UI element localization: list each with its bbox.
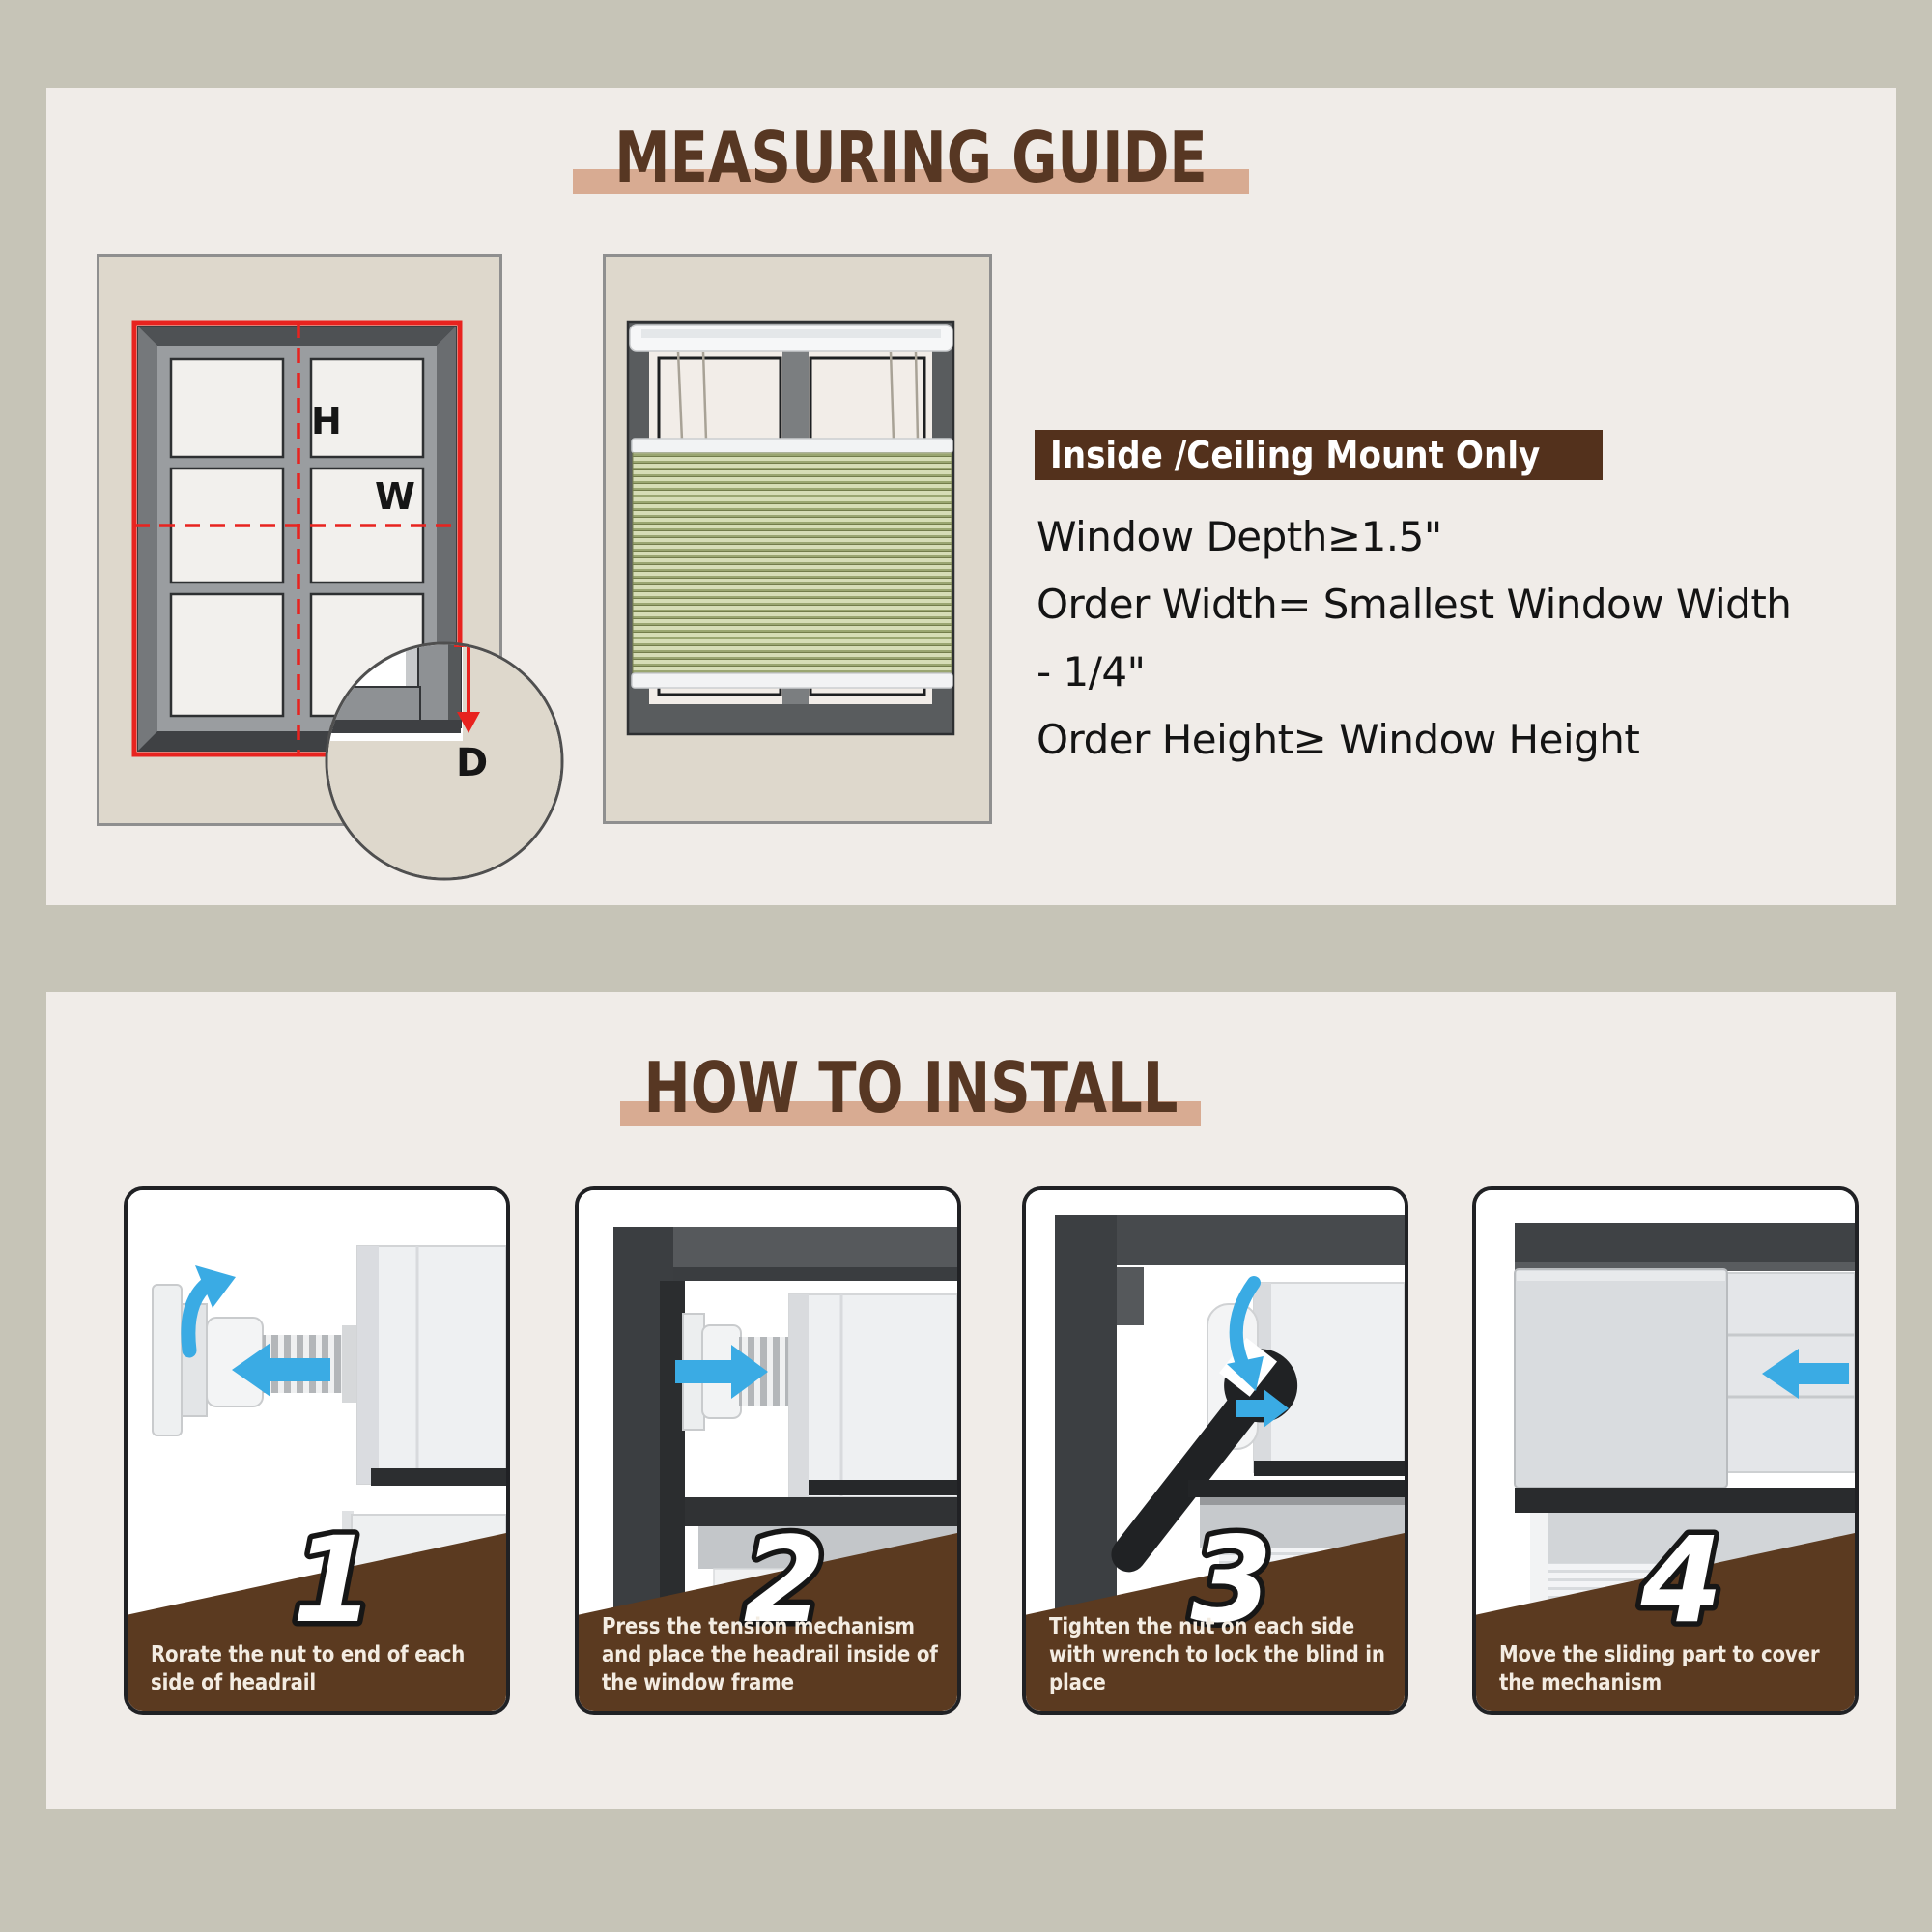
mount-type-badge: Inside /Ceiling Mount Only [1035,430,1603,480]
step-3-caption: Tighten the nut on each side with wrench… [1049,1613,1408,1697]
measuring-guide-section: MEASURING GUIDE [46,88,1896,905]
spec-line-depth: Window Depth≥1.5" [1037,503,1887,571]
headrail-end [357,1246,506,1486]
install-step-3-card: 3 Tighten the nut on each side with wren… [1022,1186,1408,1715]
bottom-rail [632,673,952,688]
middle-rail [632,439,952,453]
spec-line-width: Order Width= Smallest Window Width [1037,571,1887,639]
install-step-4-card: 4 Move the sliding part to cover the mec… [1472,1186,1859,1715]
spec-line-width-2: - 1/4" [1037,639,1887,706]
height-label: H [311,400,342,442]
install-step-2-card: 2 Press the tension mechanism and place … [575,1186,961,1715]
spec-line-height: Order Height≥ Window Height [1037,706,1887,774]
pleated-fabric [633,453,952,673]
measuring-specs: Window Depth≥1.5" Order Width= Smallest … [1037,503,1887,774]
depth-label: D [456,741,488,785]
svg-text:1: 1 [293,1512,375,1649]
install-step-1-card: 1 Rorate the nut to end of each side of … [124,1186,510,1715]
window-shade-diagram [603,254,992,824]
width-label: W [375,475,415,518]
how-to-install-title: HOW TO INSTALL [577,1053,1244,1122]
step-2-caption: Press the tension mechanism and place th… [602,1613,961,1697]
svg-text:4: 4 [1640,1512,1723,1649]
sliding-cover [1515,1269,1727,1488]
window-recess [1515,1223,1855,1271]
how-to-install-section: HOW TO INSTALL [46,992,1896,1809]
window-measure-diagram: H W D [97,254,565,930]
step-4-number: 4 [1600,1497,1764,1652]
headrail [789,1294,957,1497]
step-1-caption: Rorate the nut to end of each side of he… [151,1641,510,1697]
step-4-caption: Move the sliding part to cover the mecha… [1499,1641,1859,1697]
step-1-number: 1 [251,1497,415,1652]
measuring-guide-title: MEASURING GUIDE [541,123,1282,192]
